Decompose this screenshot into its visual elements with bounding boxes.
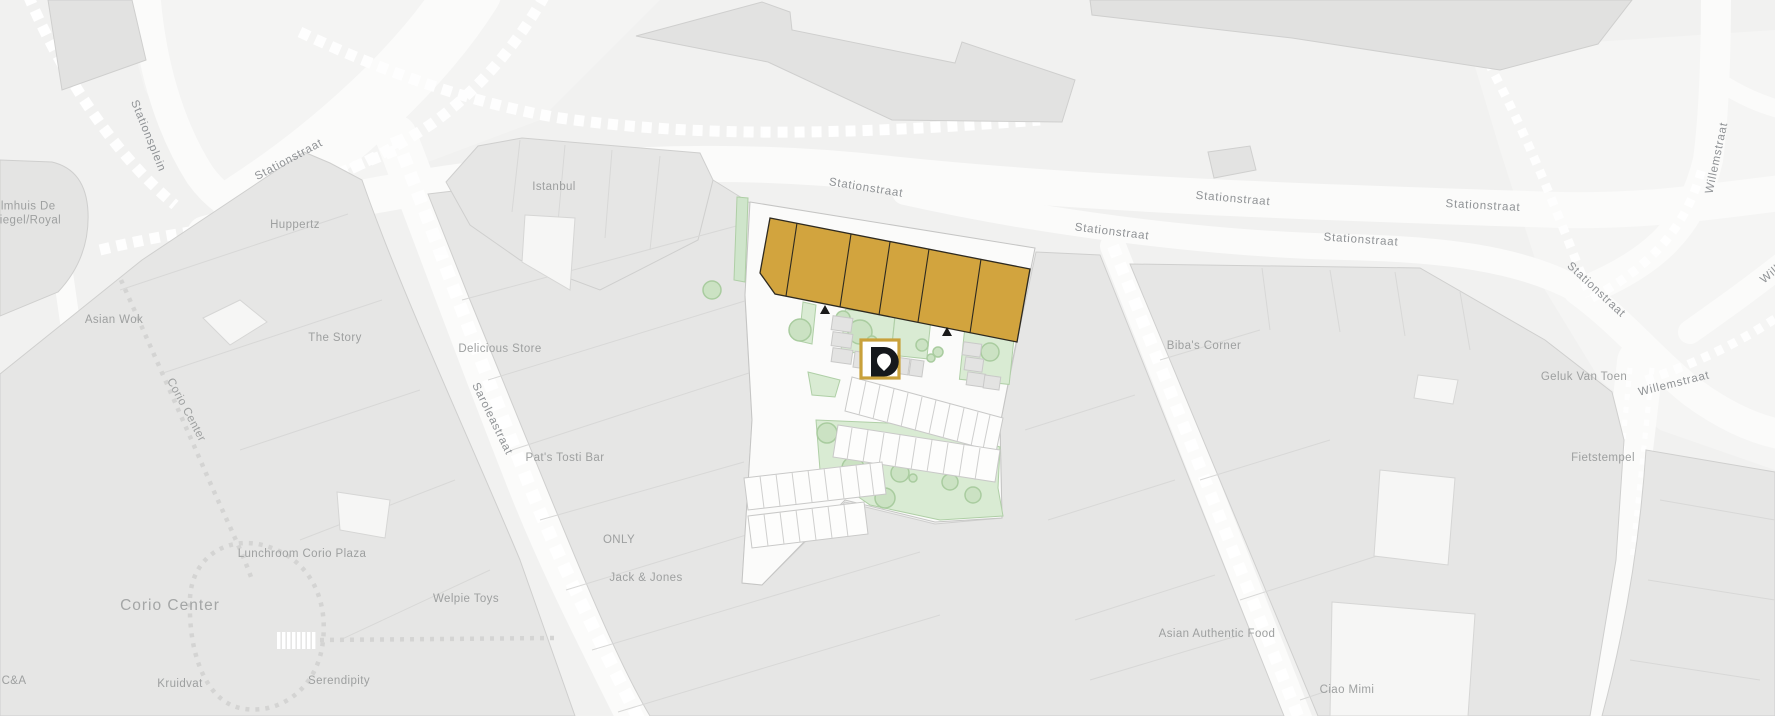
poi-label-istanbul: Istanbul [532,181,575,193]
poi-label-asian-wok: Asian Wok [85,314,143,326]
property-marker[interactable] [861,340,899,378]
poi-label-pats-tosti-bar: Pat's Tosti Bar [526,452,605,464]
poi-label-asian-authentic-food: Asian Authentic Food [1159,628,1276,640]
poi-label-jack-and-jones: Jack & Jones [609,572,682,584]
poi-label-welpie-toys: Welpie Toys [433,593,499,605]
map-graphics [0,0,1775,716]
poi-label-filmhuis: Filmhuis De Spiegel/Royal [0,200,61,229]
poi-label-the-story: The Story [308,332,361,344]
poi-label-delicious-store: Delicious Store [458,343,541,355]
area-label-corio-center: Corio Center [120,597,220,615]
poi-label-kruidvat: Kruidvat [157,678,202,690]
poi-label-serendipity: Serendipity [308,675,370,687]
poi-label-lunchroom-corio-plaza: Lunchroom Corio Plaza [238,548,367,560]
poi-label-fietstempel: Fietstempel [1571,452,1635,464]
poi-label-bibas-corner: Biba's Corner [1167,340,1242,352]
poi-label-ciao-mimi: Ciao Mimi [1320,684,1375,696]
poi-label-c-and-a: C&A [2,675,27,687]
poi-label-geluk-van-toen: Geluk Van Toen [1541,371,1627,383]
map-canvas[interactable]: Filmhuis De Spiegel/Royal Stationsplein … [0,0,1775,716]
poi-label-only: ONLY [603,534,635,546]
poi-label-huppertz: Huppertz [270,219,320,231]
